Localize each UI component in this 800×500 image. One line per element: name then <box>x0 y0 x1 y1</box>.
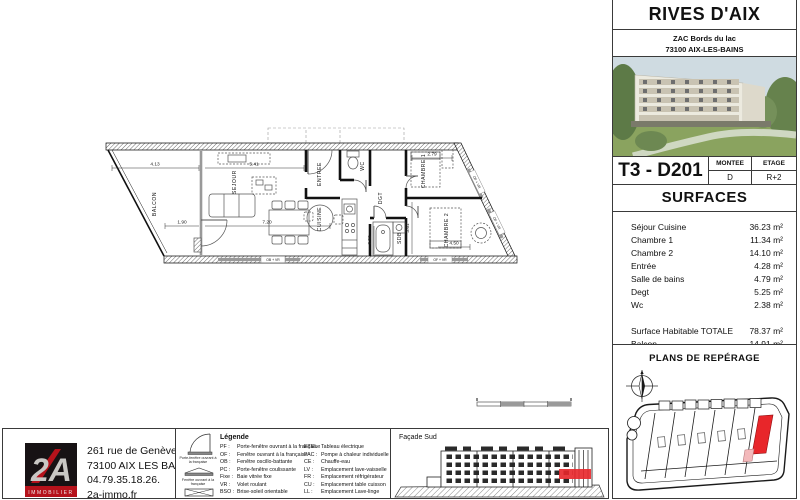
window-symbol-icon <box>184 467 214 477</box>
site-plan <box>615 391 795 499</box>
surface-row: Wc2.38 m² <box>631 299 783 312</box>
room-label-dgt: DGT <box>378 192 384 204</box>
surface-row: Degt5.25 m² <box>631 286 783 299</box>
room-label-entree: ENTREE <box>317 162 323 186</box>
scale-bar <box>476 398 574 410</box>
reperage-box: PLANS DE REPÉRAGE <box>612 344 797 499</box>
interior-walls <box>306 150 482 256</box>
facade-highlighted-unit <box>559 469 591 479</box>
building-photo <box>613 57 796 156</box>
room-label-wc: WC <box>360 161 366 171</box>
svg-text:OF + VR: OF + VR <box>433 258 447 262</box>
room-label-cuisine: CUISINE <box>317 207 323 232</box>
svg-text:7.20: 7.20 <box>262 220 272 226</box>
surface-total-row: Surface Habitable TOTALE78.37 m² <box>631 325 783 338</box>
surface-row: Chambre 214.10 m² <box>631 247 783 260</box>
room-label-sdb: SDB <box>397 232 403 244</box>
floor-plan-drawing: 4.13 5.41 1.90 7.20 2.79 4.50 2.52 3.61 … <box>68 122 543 297</box>
legend-block: Porte-fenêtre ouvrant à la française Fen… <box>175 428 391 499</box>
etage-value: R+2 <box>752 171 796 184</box>
room-label-chambre1: CHAMBRE 1 <box>421 154 427 189</box>
svg-text:4.50: 4.50 <box>449 241 459 247</box>
door-window-symbol-icon <box>180 433 218 455</box>
montee-value: D <box>709 171 752 184</box>
facade-block: Façade Sud <box>390 428 609 499</box>
surface-row: Séjour Cuisine36.23 m² <box>631 221 783 234</box>
agency-block: 2A IMMOBILIER 261 rue de Genève 73100 AI… <box>2 428 176 499</box>
project-photo-box <box>612 56 797 157</box>
room-label-chambre2: CHAMBRE 2 <box>444 213 450 248</box>
svg-text:1.90: 1.90 <box>177 220 187 226</box>
neighbour-outline <box>268 128 404 143</box>
room-label-sejour: SEJOUR <box>232 170 238 194</box>
svg-text:2.52: 2.52 <box>367 235 373 245</box>
fixed-bay-symbol-icon <box>184 488 214 497</box>
svg-text:5.41: 5.41 <box>249 162 259 168</box>
surface-row: Chambre 111.34 m² <box>631 234 783 247</box>
legend-title: Légende <box>220 434 249 441</box>
logo-monogram: 2A <box>30 452 72 488</box>
room-label-balcon: BALCON <box>152 192 158 216</box>
svg-text:2.79: 2.79 <box>427 152 437 158</box>
dimension-lines <box>112 155 470 254</box>
symbol2-caption: Fenêtre ouvrant à la française <box>178 478 218 486</box>
facade-drawing <box>391 429 608 498</box>
surfaces-title: SURFACES <box>613 185 796 212</box>
svg-text:OB + VR: OB + VR <box>266 258 280 262</box>
window-labels: OB + VR OF + VR OF + VR OF + VR <box>261 170 505 263</box>
etage-header: ETAGE <box>752 157 796 171</box>
svg-text:3.61: 3.61 <box>405 223 411 233</box>
surface-row: Salle de bains4.79 m² <box>631 273 783 286</box>
legend-column-2: ETEL :Tableau électrique PAC :Pompe à ch… <box>304 444 389 497</box>
reperage-title: PLANS DE REPÉRAGE <box>613 345 796 364</box>
surface-row: Entrée4.28 m² <box>631 260 783 273</box>
unit-id-box: T3 - D201 MONTEE ETAGE D R+2 <box>612 156 797 185</box>
project-title: RIVES D'AIX <box>649 4 761 25</box>
symbol1-caption: Porte-fenêtre ouvrant à la française <box>178 456 218 464</box>
logo-caption: IMMOBILIER <box>28 490 73 496</box>
agency-logo: 2A IMMOBILIER <box>25 443 77 497</box>
surfaces-table: Séjour Cuisine36.23 m² Chambre 111.34 m²… <box>613 212 796 351</box>
plan-sheet: 4.13 5.41 1.90 7.20 2.79 4.50 2.52 3.61 … <box>0 0 800 500</box>
project-address-box: ZAC Bords du lac 73100 AIX-LES-BAINS <box>612 29 797 57</box>
project-title-box: RIVES D'AIX <box>612 0 797 30</box>
montee-header: MONTEE <box>709 157 752 171</box>
highlighted-balcony <box>743 449 754 462</box>
svg-text:4.13: 4.13 <box>150 162 160 168</box>
project-address-line1: ZAC Bords du lac <box>613 33 796 44</box>
unit-label: T3 - D201 <box>613 157 709 184</box>
surfaces-box: SURFACES Séjour Cuisine36.23 m² Chambre … <box>612 184 797 345</box>
project-address-line2: 73100 AIX-LES-BAINS <box>613 44 796 55</box>
